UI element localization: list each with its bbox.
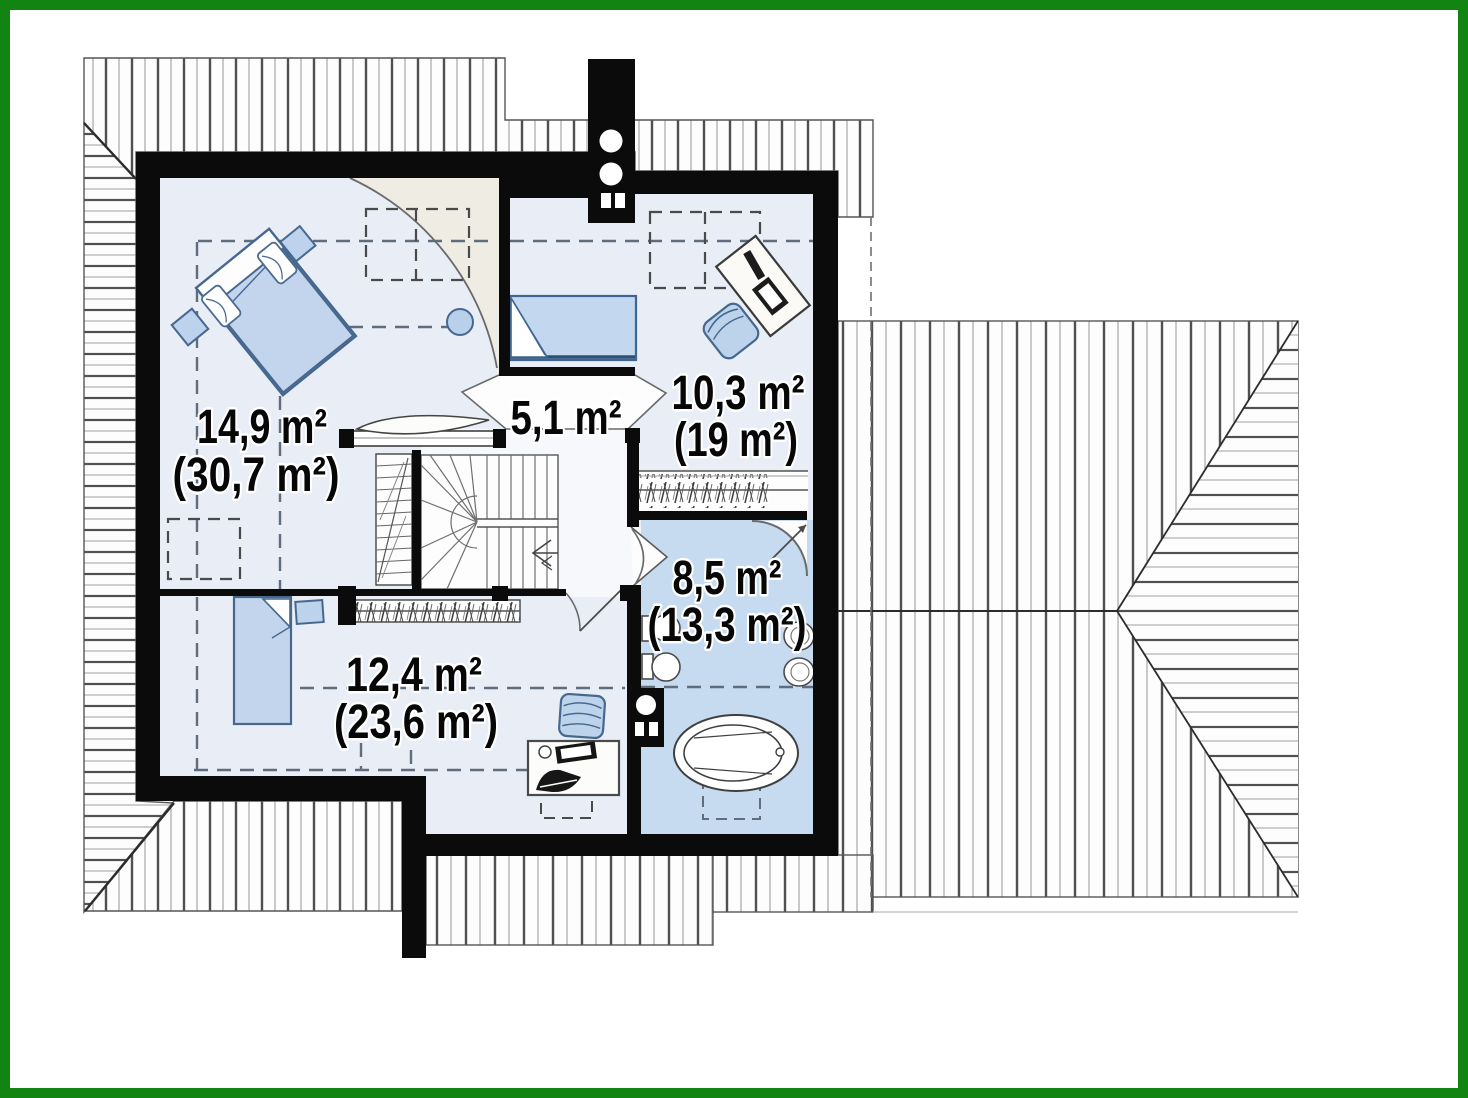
svg-text:(19 m²): (19 m²) — [674, 414, 798, 467]
svg-text:(30,7 m²): (30,7 m²) — [173, 449, 340, 502]
svg-text:14,9 m²: 14,9 m² — [197, 401, 327, 454]
svg-text:8,5 m²: 8,5 m² — [673, 552, 782, 605]
svg-text:(13,3 m²): (13,3 m²) — [648, 599, 807, 652]
svg-text:(23,6 m²): (23,6 m²) — [334, 696, 498, 749]
svg-text:12,4 m²: 12,4 m² — [346, 649, 482, 702]
svg-text:10,3 m²: 10,3 m² — [672, 367, 805, 420]
svg-text:5,1 m²: 5,1 m² — [511, 392, 622, 445]
